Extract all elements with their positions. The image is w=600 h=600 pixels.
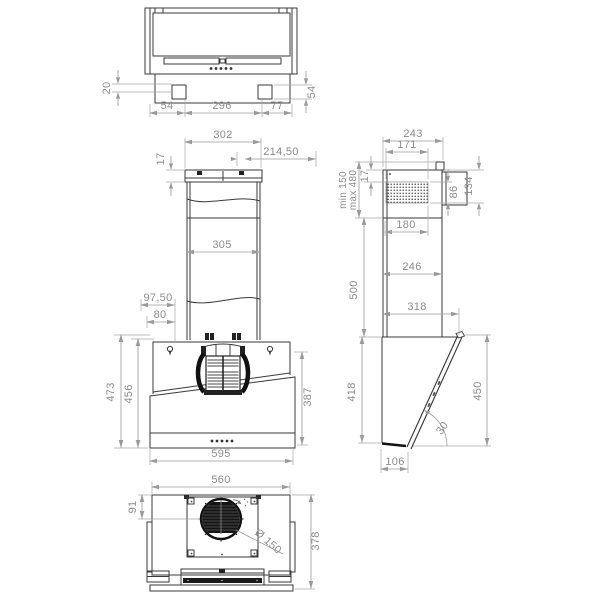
dim-front-hook-lower: 80 xyxy=(154,309,167,321)
technical-drawing-page: 20 54 54 296 77 xyxy=(0,0,600,600)
dim-side-bottom-depth: 106 xyxy=(385,456,404,468)
control-buttons-front xyxy=(211,440,234,443)
dim-side-vent-width: 171 xyxy=(397,139,416,151)
dim-front-flange-height: 17 xyxy=(155,153,167,166)
control-buttons-top xyxy=(210,67,233,70)
bracket-ear xyxy=(436,162,444,170)
glass-panel-top xyxy=(153,13,290,56)
keyhole-mount-left xyxy=(167,346,172,355)
front-view-geometry xyxy=(150,170,295,448)
keyhole-mount-right xyxy=(267,346,272,355)
mount-plate-right xyxy=(258,85,272,99)
top-view-geometry xyxy=(145,8,297,103)
dim-front-body-width: 595 xyxy=(211,448,230,460)
dim-side-body-top-depth: 318 xyxy=(407,301,426,313)
dim-side-rear-height: 418 xyxy=(346,382,358,401)
dim-side-chimney-height: 500 xyxy=(348,280,360,299)
corner-tab-right xyxy=(279,8,287,13)
dim-top-right-margin: 77 xyxy=(271,100,284,112)
dim-side-lower-chimney-depth: 180 xyxy=(396,219,415,231)
dim-top-left-margin: 54 xyxy=(161,100,174,112)
mount-plate-left xyxy=(172,85,186,99)
dim-bottom-depth: 378 xyxy=(310,531,322,550)
dim-bottom-outlet-offset: 91 xyxy=(127,501,139,514)
corner-tab-left xyxy=(155,8,163,13)
dim-side-glass-angle: 30 xyxy=(434,420,451,437)
dim-front-hook-upper: 97,50 xyxy=(143,292,172,304)
bottom-edge-parts xyxy=(147,569,293,591)
top-view-dimensions: 20 54 54 296 77 xyxy=(101,70,318,117)
dim-front-inner-height: 456 xyxy=(123,384,135,403)
dim-front-bracket-width: 302 xyxy=(213,129,232,141)
dim-side-flange-height: 17 xyxy=(359,170,371,183)
blower-motor xyxy=(198,344,248,395)
side-view-dimensions: 243 171 min 150 max 480 17 86 134 18 xyxy=(338,128,491,473)
dim-side-vent-total-height: 134 xyxy=(463,176,475,195)
dim-side-chimney-max: max 480 xyxy=(348,170,359,211)
dim-front-total-height: 473 xyxy=(105,382,117,401)
dim-side-glass-length: 450 xyxy=(472,381,484,400)
dim-front-center-offset: 214,50 xyxy=(263,146,298,158)
dim-side-vent-height: 86 xyxy=(448,186,460,199)
technical-drawing-canvas: 20 54 54 296 77 xyxy=(0,0,600,600)
dim-bottom-width: 560 xyxy=(211,474,230,486)
dim-top-side-height: 54 xyxy=(306,86,318,99)
air-outlet-grille xyxy=(386,182,428,203)
dim-front-glass-height: 387 xyxy=(302,387,314,406)
exhaust-outlet-circle xyxy=(199,499,244,542)
dim-top-depth-offset: 20 xyxy=(101,82,113,95)
dim-front-chimney-width: 305 xyxy=(212,239,231,251)
dim-side-chimney-depth: 246 xyxy=(402,261,421,273)
chimney-front xyxy=(187,182,260,340)
front-view-dimensions: 302 17 214,50 305 97,50 80 473 456 38 xyxy=(105,129,316,465)
dim-top-mount-spacing: 296 xyxy=(212,100,231,112)
